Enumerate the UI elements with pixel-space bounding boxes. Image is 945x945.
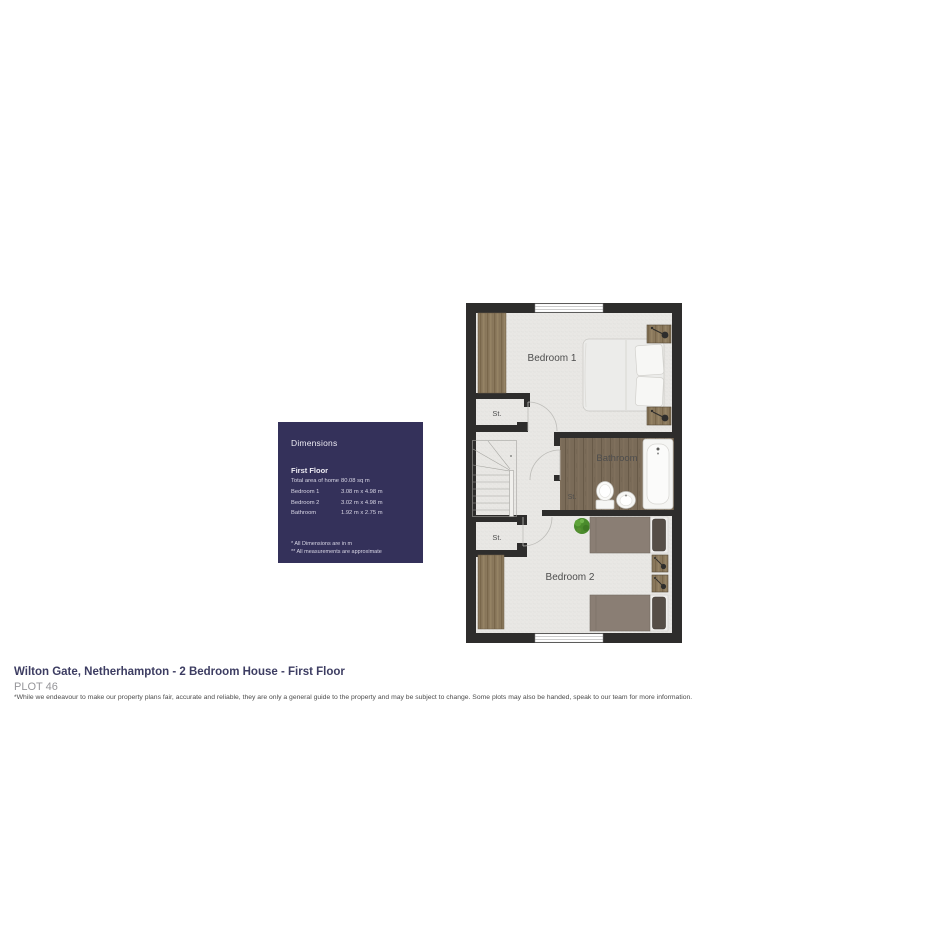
dimension-row-value: 80.08 sq m <box>341 476 411 487</box>
dimension-row: Bedroom 1 3.08 m x 4.98 m <box>291 487 411 498</box>
bedroom2-bed-top <box>590 517 668 553</box>
dimension-row-label: Total area of home <box>291 476 341 487</box>
bathroom-label: Bathroom <box>596 453 637 464</box>
bedroom2-wardrobe <box>478 555 504 629</box>
pillow <box>653 519 666 551</box>
dimensions-rows: Total area of home 80.08 sq m Bedroom 1 … <box>291 476 411 519</box>
floorplan-drawing: Bedroom 1 Bathroom Bedroom 2 St. St. St. <box>466 303 682 643</box>
page-title: Wilton Gate, Netherhampton - 2 Bedroom H… <box>14 666 345 678</box>
window-bottom <box>535 634 603 642</box>
dimension-row: Total area of home 80.08 sq m <box>291 476 411 487</box>
bedroom1-wardrobe <box>478 313 506 393</box>
dimension-row-label: Bedroom 1 <box>291 487 341 498</box>
pillow <box>653 597 666 629</box>
dimensions-footnote-1: * All Dimensions are in m <box>291 541 352 547</box>
dimensions-panel: Dimensions First Floor Total area of hom… <box>278 422 423 563</box>
storage3-label: St. <box>492 533 501 542</box>
pillow <box>635 344 664 376</box>
dimension-row-value: 1.92 m x 2.75 m <box>341 508 411 519</box>
plant-icon <box>574 518 590 534</box>
dimension-row-label: Bedroom 2 <box>291 498 341 509</box>
sink <box>617 492 636 509</box>
floorplan: Bedroom 1 Bathroom Bedroom 2 St. St. St. <box>466 303 682 643</box>
window-top <box>535 304 603 312</box>
bedroom2-nightstand-top <box>652 555 668 572</box>
dimensions-panel-title: Dimensions <box>291 438 337 448</box>
bedroom1-nightstand-top <box>647 325 671 343</box>
lamp-icon <box>661 584 666 589</box>
bedroom2-nightstand-bottom <box>652 575 668 592</box>
dimension-row-label: Bathroom <box>291 508 341 519</box>
dimension-row: Bathroom 1.92 m x 2.75 m <box>291 508 411 519</box>
lamp-icon <box>661 564 666 569</box>
dimensions-panel-section: First Floor <box>291 466 328 475</box>
pillow <box>635 376 663 406</box>
lamp-icon <box>662 332 669 339</box>
lamp-icon <box>662 415 669 422</box>
bedroom1-label: Bedroom 1 <box>528 353 577 364</box>
page-background: Dimensions First Floor Total area of hom… <box>0 0 945 945</box>
bedroom1-nightstand-bottom <box>647 407 671 425</box>
bathtub <box>643 439 673 509</box>
dimension-row-value: 3.08 m x 4.98 m <box>341 487 411 498</box>
dimension-row: Bedroom 2 3.02 m x 4.98 m <box>291 498 411 509</box>
disclaimer-text: *While we endeavour to make our property… <box>14 694 934 701</box>
dimension-row-value: 3.02 m x 4.98 m <box>341 498 411 509</box>
plot-number: PLOT 46 <box>14 681 58 693</box>
bedroom2-bed-bottom <box>590 595 668 631</box>
bedroom1-bed <box>583 339 664 411</box>
storage1-label: St. <box>492 409 501 418</box>
bedroom2-label: Bedroom 2 <box>546 572 595 583</box>
storage2-label: St. <box>568 494 577 501</box>
toilet <box>596 482 614 510</box>
dimensions-footnote-2: ** All measurements are approximate <box>291 549 382 555</box>
